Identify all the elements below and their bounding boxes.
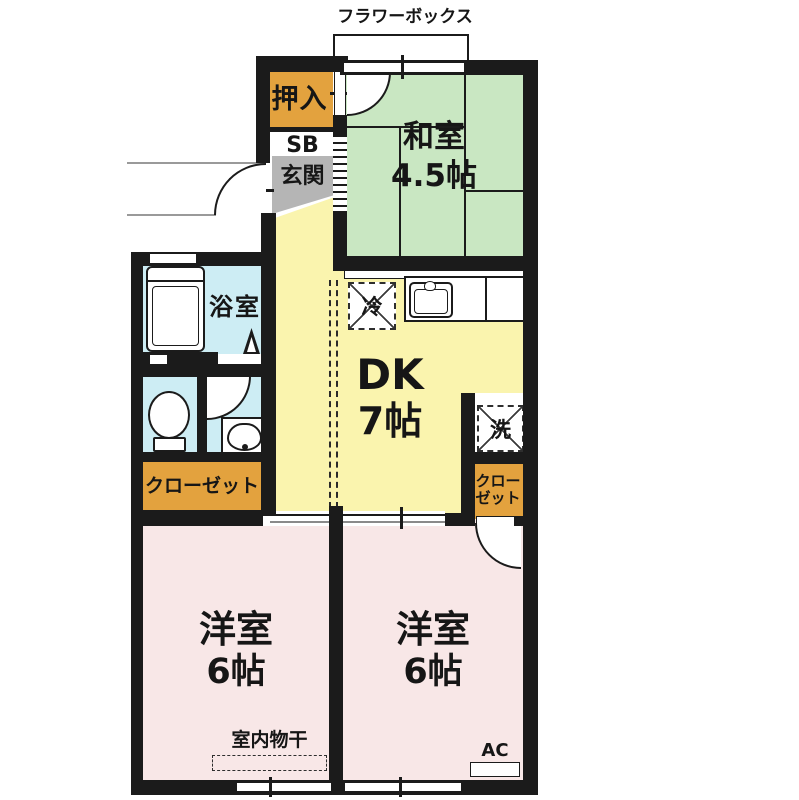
porch-line-top <box>127 162 266 164</box>
ac-unit-box <box>470 762 520 777</box>
sliding-door-tick <box>400 507 403 529</box>
bathroom-label: 浴室 <box>197 288 273 328</box>
western-right-size-label: 6帖 <box>343 652 523 692</box>
washing-machine-label: 洗 <box>490 414 511 444</box>
wall <box>514 516 523 526</box>
oshiire-label: 押入 <box>266 76 333 124</box>
wall <box>333 211 347 258</box>
washbasin-drain <box>242 444 248 450</box>
refrigerator-box: 冷 <box>348 282 396 330</box>
closet-right-line1: クロー <box>475 473 520 490</box>
bathtub-ledge-line <box>148 280 203 282</box>
indoor-drying-label: 室内物干 <box>212 730 327 752</box>
dk-size-label: 7帖 <box>325 400 455 444</box>
wall <box>131 510 263 526</box>
washing-machine-box: 洗 <box>477 405 524 452</box>
washitsu-size-label: 4.5帖 <box>345 158 523 196</box>
closet-left-label: クローゼット <box>141 472 263 502</box>
faucet-icon <box>424 281 436 291</box>
wall <box>197 374 207 454</box>
counter-divider <box>485 277 487 321</box>
window-tick <box>401 55 404 79</box>
refrigerator-label: 冷 <box>362 291 383 321</box>
window <box>345 783 461 791</box>
window-tick <box>269 777 272 797</box>
toilet-tank <box>153 437 186 452</box>
genkan-label: 玄関 <box>272 158 333 196</box>
closet-right-label: クロー ゼット <box>471 464 525 516</box>
flower-box-label: フラワーボックス <box>325 6 485 30</box>
wall <box>523 60 538 795</box>
bathtub-inner <box>152 286 199 346</box>
kitchen-sink-basin <box>414 289 448 314</box>
shoe-box-label: SB <box>272 131 333 161</box>
wall <box>141 364 276 377</box>
wall-notch <box>150 355 167 364</box>
sliding-door-line <box>263 514 445 516</box>
hallway <box>272 196 333 514</box>
wall <box>329 506 343 795</box>
wall <box>131 780 538 795</box>
bathroom-window <box>150 254 196 263</box>
wall <box>471 452 538 464</box>
entry-door-arc <box>214 163 266 215</box>
floor-plan: 冷 洗 <box>0 0 799 800</box>
wall <box>333 256 538 271</box>
toilet-icon <box>148 391 190 439</box>
dk-name-label: DK <box>325 352 455 398</box>
washitsu-door-leaf <box>334 70 346 117</box>
western-right-name-label: 洋室 <box>343 610 523 650</box>
window-tick <box>399 777 402 797</box>
porch-line-bottom <box>127 214 216 216</box>
indoor-drying-box <box>212 755 327 771</box>
sliding-door-line-2 <box>270 521 445 523</box>
washitsu-name-label: 和室 <box>345 120 523 156</box>
western-left-name-label: 洋室 <box>141 610 331 650</box>
ac-label: AC <box>470 742 520 760</box>
closet-right-line2: ゼット <box>475 490 520 507</box>
wall <box>131 452 276 462</box>
window <box>237 783 331 791</box>
western-left-size-label: 6帖 <box>141 652 331 692</box>
window <box>344 63 464 72</box>
